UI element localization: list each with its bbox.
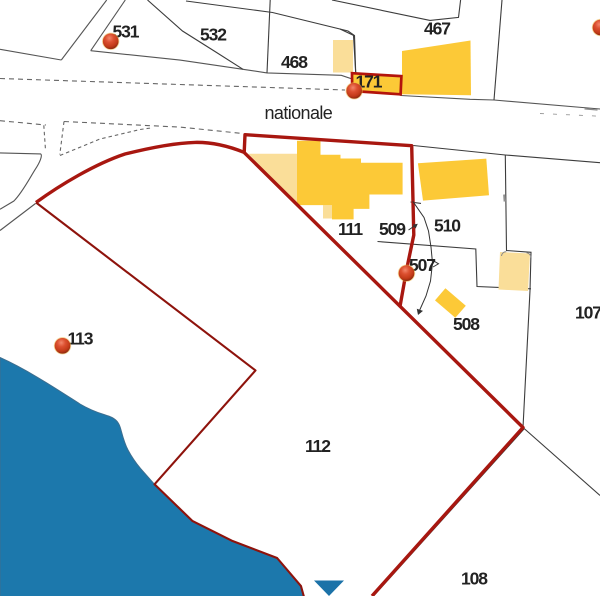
- svg-text:508: 508: [453, 314, 480, 334]
- svg-text:468: 468: [281, 52, 308, 72]
- svg-text:nationale: nationale: [265, 103, 333, 123]
- svg-text:467: 467: [424, 19, 450, 39]
- svg-text:510: 510: [434, 216, 461, 236]
- svg-text:108: 108: [461, 569, 488, 589]
- svg-text:111: 111: [338, 219, 363, 239]
- svg-text:107: 107: [575, 303, 600, 323]
- svg-text:509: 509: [379, 219, 406, 239]
- svg-text:112: 112: [305, 436, 331, 456]
- svg-text:532: 532: [200, 24, 227, 44]
